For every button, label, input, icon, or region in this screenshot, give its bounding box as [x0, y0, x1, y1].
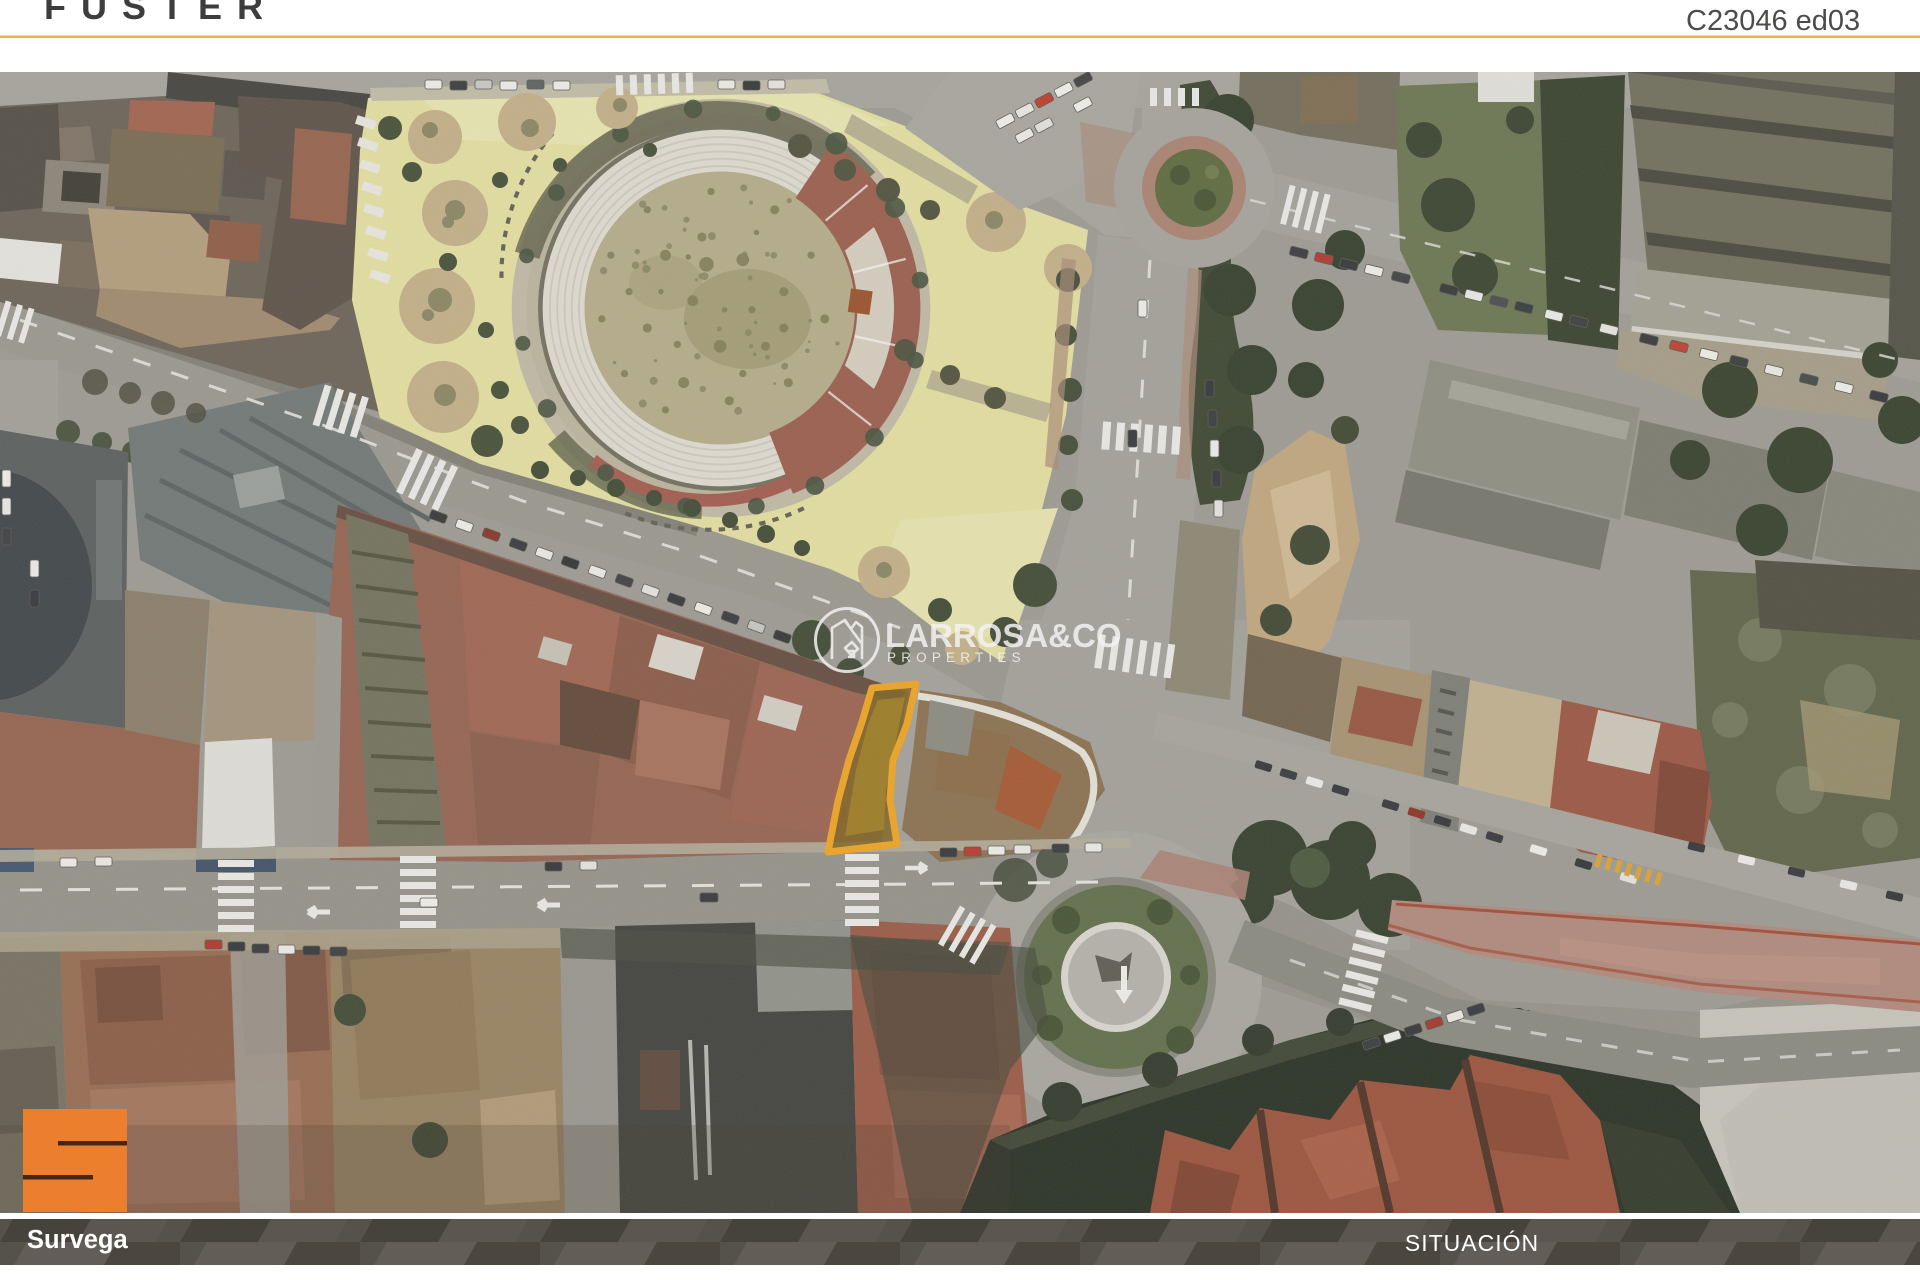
svg-text:Survega: Survega: [27, 1226, 128, 1254]
svg-text:FUSTER: FUSTER: [44, 0, 278, 27]
svg-text:SITUACIÓN: SITUACIÓN: [1405, 1230, 1539, 1256]
svg-text:C23046 ed03: C23046 ed03: [1686, 5, 1860, 37]
